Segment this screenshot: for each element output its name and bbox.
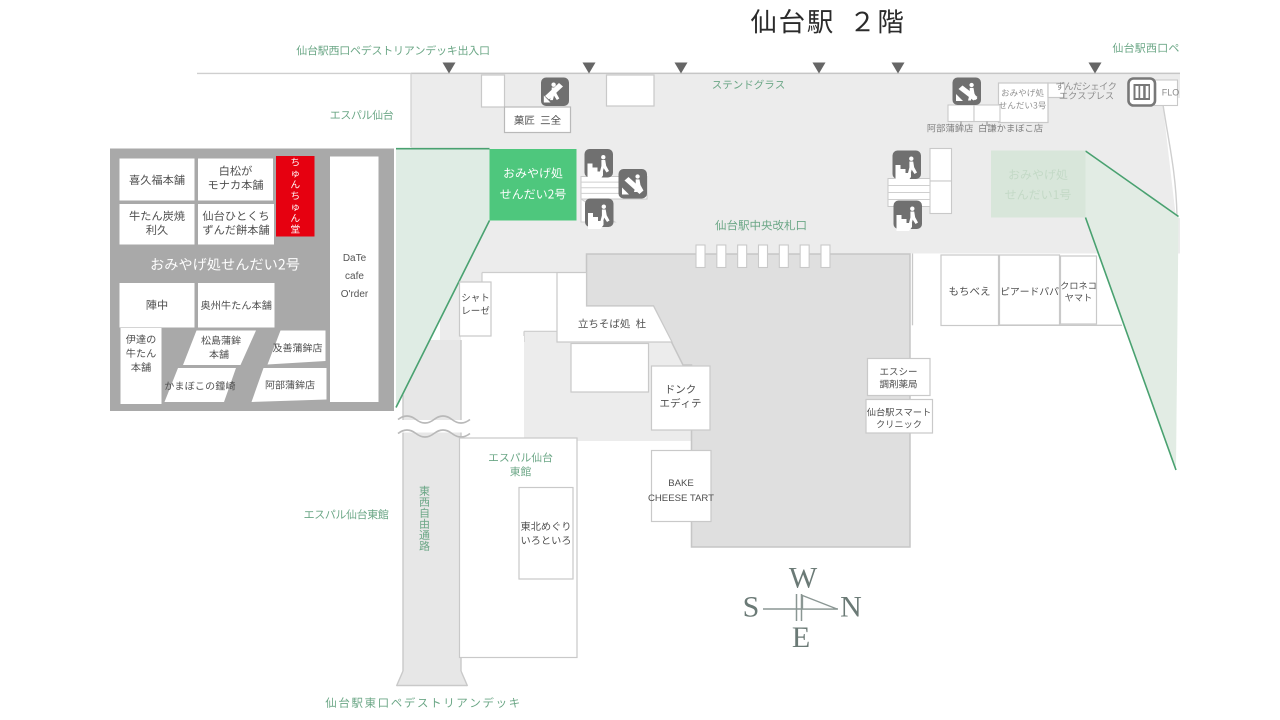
svg-text:O'rder: O'rder	[341, 289, 369, 300]
svg-text:cafe: cafe	[345, 271, 364, 282]
svg-text:FLO: FLO	[1162, 88, 1180, 98]
svg-text:CHEESE TART: CHEESE TART	[648, 493, 714, 504]
svg-text:BAKE: BAKE	[668, 478, 694, 489]
svg-text:W: W	[789, 562, 818, 595]
svg-text:S: S	[743, 591, 760, 624]
svg-text:N: N	[840, 591, 862, 624]
svg-text:DaTe: DaTe	[343, 253, 367, 264]
svg-text:E: E	[792, 621, 810, 654]
